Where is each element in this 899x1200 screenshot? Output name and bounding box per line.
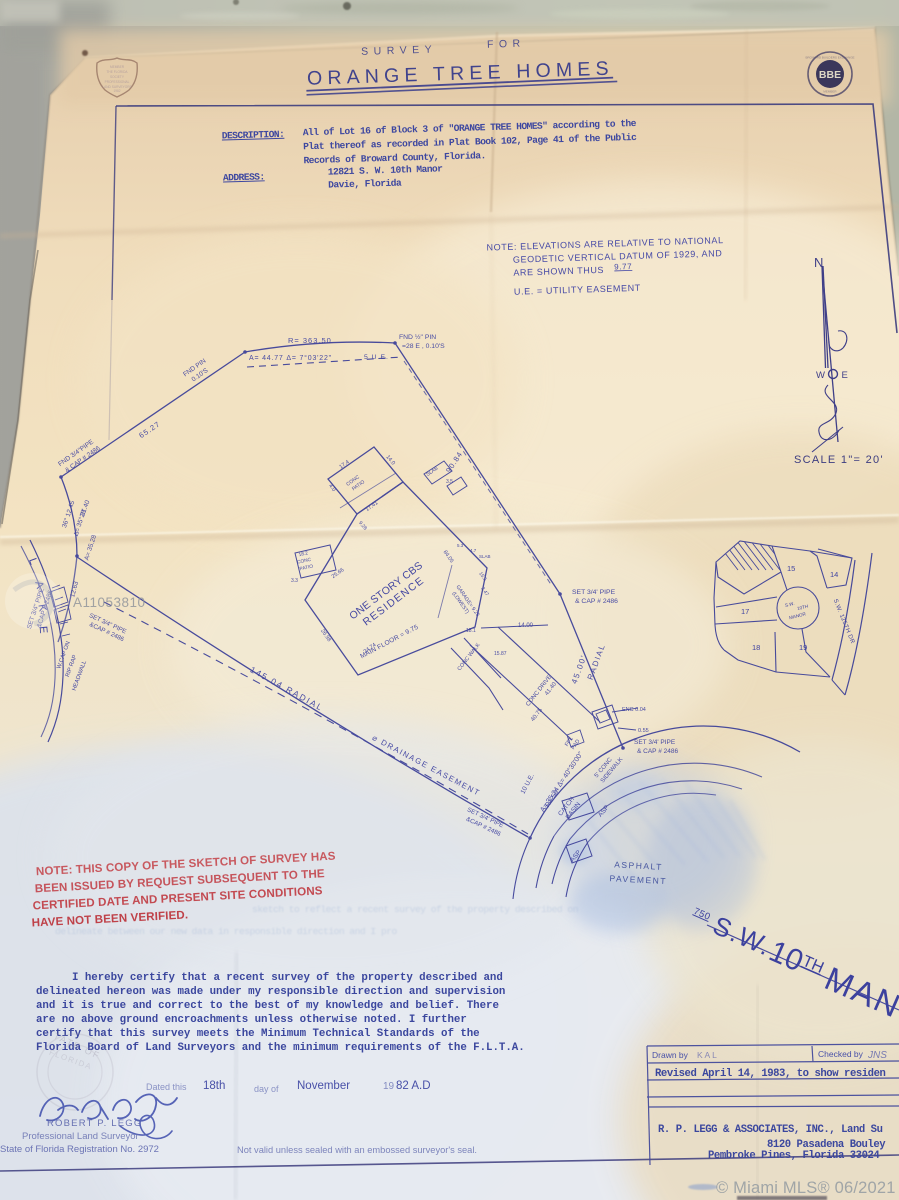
- svg-text:18: 18: [752, 643, 760, 652]
- svg-text:3.5: 3.5: [446, 479, 453, 485]
- svg-text:15.87: 15.87: [494, 651, 507, 657]
- svg-text:November: November: [297, 1080, 350, 1092]
- svg-text:certify that this survey meets: certify that this survey meets the Minim…: [36, 1028, 480, 1040]
- svg-text:82 A.D: 82 A.D: [396, 1080, 431, 1092]
- svg-text:A= 44.77 Δ= 7°03'22": A= 44.77 Δ= 7°03'22": [249, 354, 332, 362]
- svg-text:© Miami MLS® 06/2021: © Miami MLS® 06/2021: [716, 1179, 896, 1197]
- svg-text:FOR: FOR: [487, 37, 526, 50]
- svg-text:14.00: 14.00: [518, 623, 534, 629]
- svg-text:BROWARD BUILDERS EXCHANGE: BROWARD BUILDERS EXCHANGE: [805, 56, 854, 60]
- svg-text:DESCRIPTION:: DESCRIPTION:: [222, 129, 285, 142]
- svg-text:19: 19: [799, 643, 807, 652]
- svg-text:R= 363.50: R= 363.50: [288, 336, 332, 345]
- svg-text:17: 17: [741, 607, 749, 616]
- svg-text:& CAP # 2486: & CAP # 2486: [637, 748, 678, 755]
- svg-text:5 U.E.: 5 U.E.: [364, 354, 389, 361]
- svg-text:1982: 1982: [113, 89, 120, 93]
- svg-text:I hereby certify that a recent: I hereby certify that a recent survey of…: [72, 972, 503, 984]
- svg-text:ENC 0.04: ENC 0.04: [622, 707, 646, 713]
- svg-text:=28 E , 0.10'S: =28 E , 0.10'S: [402, 343, 445, 350]
- svg-text:Dated this: Dated this: [146, 1082, 187, 1092]
- svg-text:MEMBER: MEMBER: [110, 65, 125, 69]
- svg-text:Drawn by: Drawn by: [652, 1050, 689, 1060]
- svg-text:18.1: 18.1: [466, 628, 476, 634]
- svg-text:delineate between our new data: delineate between our new data in respon…: [55, 926, 397, 937]
- svg-text:Checked by: Checked by: [818, 1049, 864, 1059]
- svg-text:ADDRESS:: ADDRESS:: [223, 171, 265, 183]
- svg-text:delineated hereon was made und: delineated hereon was made under my resp…: [36, 986, 505, 998]
- svg-text:Revised April 14, 1983, to sho: Revised April 14, 1983, to show residen: [655, 1068, 885, 1080]
- svg-text:Davie, Florida: Davie, Florida: [328, 178, 402, 191]
- svg-text:18th: 18th: [203, 1080, 225, 1092]
- svg-text:MEMBER: MEMBER: [823, 90, 837, 94]
- svg-text:Pembroke Pines, Florida 33024: Pembroke Pines, Florida 33024: [708, 1150, 880, 1162]
- svg-text:4.7: 4.7: [470, 548, 477, 553]
- svg-text:A11053810: A11053810: [73, 595, 146, 610]
- svg-text:SURVEY: SURVEY: [361, 43, 437, 58]
- svg-text:ROBERT P. LEGG: ROBERT P. LEGG: [47, 1118, 142, 1129]
- svg-text:9.77: 9.77: [614, 262, 632, 272]
- svg-text:SLAB: SLAB: [479, 554, 491, 559]
- svg-text:THE FLORIDA: THE FLORIDA: [106, 70, 128, 74]
- svg-text:3.3: 3.3: [291, 578, 298, 584]
- svg-text:N: N: [814, 255, 823, 270]
- svg-text:SCALE 1"= 20': SCALE 1"= 20': [794, 454, 884, 466]
- svg-text:Not valid unless sealed with a: Not valid unless sealed with an embossed…: [237, 1145, 477, 1155]
- svg-text:and it is true and correct to: and it is true and correct to the best o…: [36, 1000, 499, 1012]
- svg-text:SOCIETY: SOCIETY: [110, 75, 125, 79]
- svg-text:0.55: 0.55: [638, 728, 649, 734]
- svg-text:State of Florida Registration: State of Florida Registration No. 2972: [0, 1144, 159, 1155]
- svg-text:are no above ground encroachme: are no above ground encroachments unless…: [36, 1014, 467, 1026]
- svg-text:K A L: K A L: [697, 1050, 717, 1060]
- svg-text:Florida Board of Land Surveyor: Florida Board of Land Surveyors and the …: [36, 1042, 525, 1054]
- svg-text:5.3: 5.3: [457, 543, 464, 548]
- svg-text:PROFESSIONAL: PROFESSIONAL: [105, 80, 130, 84]
- svg-text:19: 19: [383, 1081, 395, 1092]
- svg-text:day of: day of: [254, 1084, 279, 1094]
- svg-text:BBE: BBE: [819, 69, 841, 81]
- svg-text:E: E: [842, 370, 848, 381]
- svg-text:R. P. LEGG & ASSOCIATES, INC.,: R. P. LEGG & ASSOCIATES, INC., Land Su: [658, 1124, 883, 1136]
- svg-text:& CAP # 2486: & CAP # 2486: [575, 598, 618, 605]
- svg-text:W: W: [816, 370, 825, 381]
- svg-text:SET 3/4' PIPE: SET 3/4' PIPE: [572, 589, 616, 596]
- svg-text:SET 3/4' PIPE: SET 3/4' PIPE: [634, 739, 676, 746]
- svg-text:15: 15: [787, 564, 795, 573]
- svg-text:14: 14: [830, 570, 838, 579]
- svg-text:JNS: JNS: [867, 1050, 887, 1061]
- svg-text:Professional Land Surveyor: Professional Land Surveyor: [22, 1131, 139, 1142]
- svg-text:FND ½" PIN: FND ½" PIN: [399, 333, 436, 341]
- svg-text:sketch to reflect a recent sur: sketch to reflect a recent survey of the…: [252, 904, 578, 915]
